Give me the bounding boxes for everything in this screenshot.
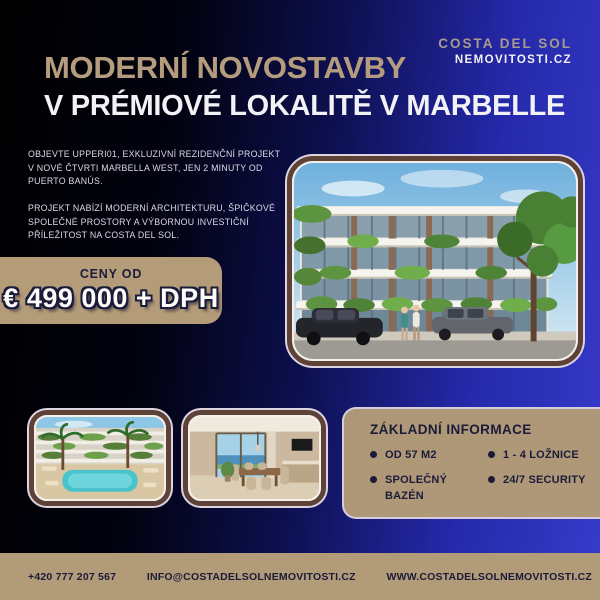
headline-line1: MODERNÍ NOVOSTAVBY xyxy=(44,50,406,86)
apartment-building-image xyxy=(292,161,578,361)
interior-render-art xyxy=(190,417,319,499)
basic-info-box: ZÁKLADNÍ INFORMACE OD 57 M2 1 - 4 LOŽNIC… xyxy=(342,407,600,519)
bullet-dot-icon xyxy=(370,451,377,458)
pool-render-art xyxy=(36,417,164,499)
info-item-security: 24/7 SECURITY xyxy=(488,473,598,505)
pool-courtyard-image xyxy=(34,415,166,501)
brand-logo: COSTA DEL SOL NEMOVITOSTI.CZ xyxy=(438,36,572,67)
website-url: WWW.COSTADELSOLNEMOVITOSTI.CZ xyxy=(386,571,592,583)
main-photo-frame xyxy=(285,154,585,368)
brand-domain: NEMOVITOSTI.CZ xyxy=(438,53,572,67)
info-grid: OD 57 M2 1 - 4 LOŽNICE SPOLEČNÝ BAZÉN 24… xyxy=(370,448,596,505)
price-box: CENY OD € 499 000 + DPH xyxy=(0,257,222,324)
flyer-canvas: MODERNÍ NOVOSTAVBY V PRÉMIOVÉ LOKALITĚ V… xyxy=(0,0,600,600)
info-item-pool: SPOLEČNÝ BAZÉN xyxy=(370,473,488,505)
headline-line2: V PRÉMIOVÉ LOKALITĚ V MARBELLE xyxy=(44,90,565,123)
thumb-pool-frame xyxy=(27,408,173,508)
building-render-art xyxy=(294,163,576,359)
intro-text: OBJEVTE UPPERI01, EXKLUZIVNÍ REZIDENČNÍ … xyxy=(28,148,288,256)
info-box-title: ZÁKLADNÍ INFORMACE xyxy=(370,422,596,437)
bullet-dot-icon xyxy=(370,476,377,483)
contact-bar: +420 777 207 567 INFO@COSTADELSOLNEMOVIT… xyxy=(0,553,600,600)
email-address: INFO@COSTADELSOLNEMOVITOSTI.CZ xyxy=(147,571,356,583)
price-label: CENY OD xyxy=(80,267,142,281)
phone-number: +420 777 207 567 xyxy=(28,571,116,583)
bullet-dot-icon xyxy=(488,476,495,483)
price-value: € 499 000 + DPH xyxy=(3,283,218,314)
brand-name: COSTA DEL SOL xyxy=(438,36,572,53)
thumb-interior-frame xyxy=(181,408,328,508)
intro-paragraph-1: OBJEVTE UPPERI01, EXKLUZIVNÍ REZIDENČNÍ … xyxy=(28,148,288,189)
info-item-bedrooms: 1 - 4 LOŽNICE xyxy=(488,448,598,464)
dining-interior-image xyxy=(188,415,321,501)
info-item-size: OD 57 M2 xyxy=(370,448,488,464)
intro-paragraph-2: PROJEKT NABÍZÍ MODERNÍ ARCHITEKTURU, ŠPI… xyxy=(28,202,288,243)
bullet-dot-icon xyxy=(488,451,495,458)
